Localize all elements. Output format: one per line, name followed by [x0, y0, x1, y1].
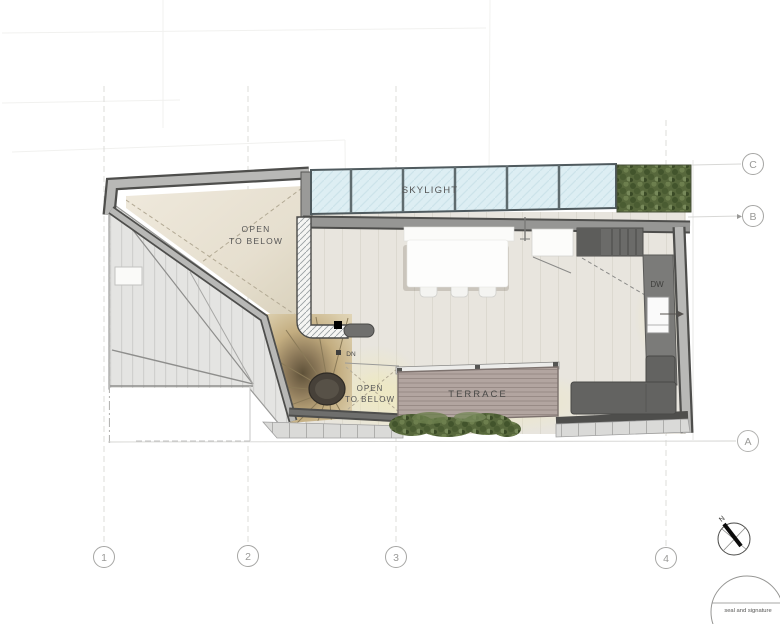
- open-below-upper-label-line2: TO BELOW: [229, 236, 283, 246]
- svg-text:2: 2: [245, 551, 251, 563]
- roof-hatch-box: [115, 267, 142, 285]
- grid-bubble-B: B: [737, 206, 764, 227]
- svg-text:3: 3: [393, 552, 399, 564]
- open-below-stair-label-line1: OPEN: [357, 384, 384, 393]
- lower-left-setback: [110, 386, 250, 441]
- svg-text:C: C: [749, 159, 757, 171]
- grid-bubble-3: 3: [386, 547, 407, 568]
- floor-plan-drawing: SKYLIGHT OPEN TO BELOW OPEN TO BELOW TER…: [0, 0, 780, 624]
- stair-down-label: DN: [346, 351, 356, 358]
- dishwasher-label: DW: [650, 280, 664, 289]
- kitchen-back-counter: [404, 227, 514, 241]
- north-label: N: [718, 515, 726, 524]
- open-below-stair-label-line2: TO BELOW: [345, 395, 395, 404]
- skylight-band: [311, 164, 616, 214]
- floor-plan-canvas: SKYLIGHT OPEN TO BELOW OPEN TO BELOW TER…: [0, 0, 780, 624]
- svg-text:A: A: [744, 436, 751, 448]
- seal-label: seal and signature: [724, 608, 771, 614]
- kitchen-island: [407, 240, 508, 287]
- kitchen-counter-block: [532, 229, 573, 256]
- open-below-upper-label-line1: OPEN: [242, 224, 271, 234]
- skylight-label: SKYLIGHT: [402, 185, 459, 196]
- grid-bubble-A: A: [738, 431, 759, 452]
- terrace-plants: [389, 412, 521, 437]
- planter-greenery: [617, 165, 691, 212]
- grid-bubble-2: 2: [238, 546, 259, 567]
- terrace-label: TERRACE: [448, 389, 507, 400]
- grid-bubble-4: 4: [656, 548, 677, 569]
- kitchen-sink: [647, 297, 669, 333]
- grid-bubble-1: 1: [94, 547, 115, 568]
- svg-text:B: B: [749, 211, 756, 223]
- svg-text:4: 4: [663, 553, 669, 565]
- seal-and-signature: seal and signature: [711, 576, 780, 624]
- north-arrow: N: [718, 515, 750, 555]
- grid-bubble-C: C: [743, 154, 764, 175]
- svg-text:1: 1: [101, 552, 107, 564]
